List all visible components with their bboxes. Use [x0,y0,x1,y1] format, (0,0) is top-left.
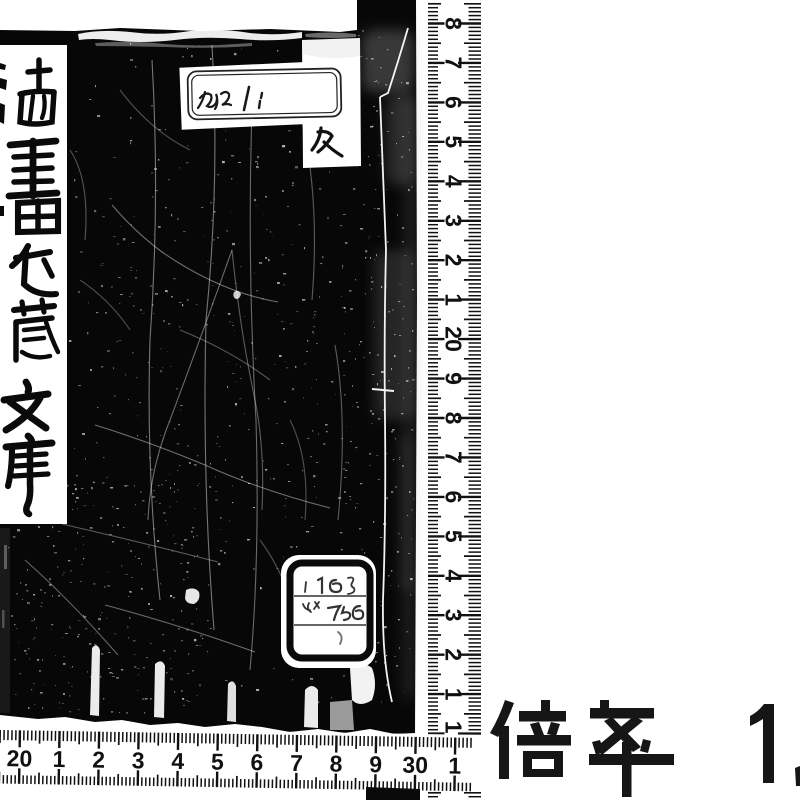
svg-text:1: 1 [441,688,467,701]
svg-text:2: 2 [441,254,467,267]
svg-text:8: 8 [441,412,467,425]
svg-text:2: 2 [441,648,467,661]
svg-text:1: 1 [52,746,65,772]
svg-text:6: 6 [441,96,467,109]
svg-text:7: 7 [441,57,467,70]
svg-text:6: 6 [250,749,263,775]
svg-text:8: 8 [329,750,342,776]
svg-text:20: 20 [441,326,467,352]
svg-text:5: 5 [441,530,467,543]
svg-text:5: 5 [441,135,467,148]
svg-text:4: 4 [441,569,467,582]
svg-text:3: 3 [441,214,467,227]
svg-text:20: 20 [6,745,32,771]
svg-text:1: 1 [441,293,467,306]
svg-text:9: 9 [369,751,382,777]
svg-text:2: 2 [92,747,105,773]
svg-text:1: 1 [448,752,461,778]
svg-text:5: 5 [211,749,224,775]
svg-text:3: 3 [132,747,145,773]
svg-text:3: 3 [441,609,467,622]
svg-text:4: 4 [441,175,467,188]
svg-text:7: 7 [290,750,303,776]
svg-text:4: 4 [171,748,184,774]
svg-text:7: 7 [441,451,467,464]
svg-text:6: 6 [441,491,467,504]
svg-text:8: 8 [441,17,467,30]
svg-text:9: 9 [441,372,467,385]
svg-text:30: 30 [402,752,428,778]
